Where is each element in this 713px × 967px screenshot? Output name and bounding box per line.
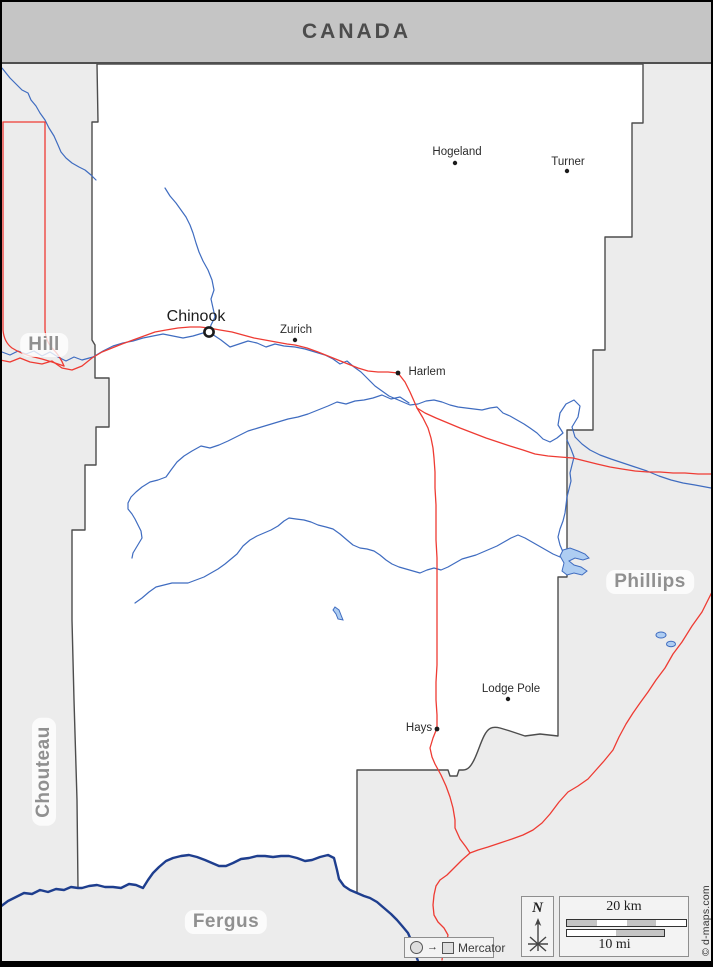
scale-segment bbox=[656, 920, 686, 926]
scale-bar-km bbox=[566, 919, 687, 927]
projection-box: → Mercator bbox=[404, 937, 494, 958]
town-label-zurich: Zurich bbox=[280, 324, 312, 336]
scale-segment bbox=[567, 920, 597, 926]
frame-left bbox=[0, 0, 2, 967]
phillips-lake-2 bbox=[667, 641, 676, 647]
town-label-hays: Hays bbox=[406, 722, 432, 734]
border-lake bbox=[560, 548, 589, 575]
arrow-right-icon: → bbox=[427, 942, 438, 953]
town-marker-harlem bbox=[396, 371, 401, 376]
town-marker-chinook bbox=[204, 327, 213, 336]
county-map bbox=[0, 0, 713, 967]
scale-segment bbox=[567, 930, 616, 936]
county-label-phillips: Phillips bbox=[606, 570, 694, 594]
town-label-lodge-pole: Lodge Pole bbox=[482, 683, 540, 695]
town-marker-hogeland bbox=[453, 161, 457, 165]
scale-box: 20 km 10 mi bbox=[559, 896, 689, 957]
scale-segment bbox=[616, 930, 665, 936]
globe-circle-icon bbox=[410, 941, 423, 954]
town-marker-hays bbox=[435, 727, 440, 732]
scale-mi-label: 10 mi bbox=[566, 937, 663, 953]
scale-segment bbox=[597, 920, 627, 926]
compass-rose-icon bbox=[525, 917, 551, 955]
scale-bar-mi bbox=[566, 929, 665, 937]
town-label-chinook: Chinook bbox=[167, 308, 226, 326]
county-label-chouteau: Chouteau bbox=[32, 718, 56, 826]
map-page: CANADA Chinook Zur bbox=[0, 0, 713, 967]
blaine-county-shape bbox=[72, 64, 643, 893]
hill-county-road-east bbox=[45, 122, 64, 366]
compass-box: N bbox=[521, 896, 554, 957]
county-label-hill: Hill bbox=[20, 333, 68, 357]
town-label-hogeland: Hogeland bbox=[432, 146, 481, 158]
scale-segment bbox=[627, 920, 657, 926]
nw-creek bbox=[2, 68, 96, 180]
banner-title: CANADA bbox=[302, 20, 411, 44]
town-marker-turner bbox=[565, 169, 569, 173]
frame-bottom bbox=[0, 961, 713, 967]
phillips-lake-1 bbox=[656, 632, 666, 638]
canada-banner: CANADA bbox=[2, 2, 711, 64]
frame-top bbox=[0, 0, 713, 2]
town-marker-lodge-pole bbox=[506, 697, 510, 701]
scale-km-label: 20 km bbox=[560, 899, 688, 915]
flat-square-icon bbox=[442, 942, 454, 954]
compass-north-label: N bbox=[532, 900, 543, 917]
projection-label: Mercator bbox=[458, 941, 505, 955]
town-label-harlem: Harlem bbox=[408, 366, 445, 378]
town-label-turner: Turner bbox=[551, 156, 584, 168]
hill-county-road-west bbox=[3, 122, 64, 366]
county-label-fergus: Fergus bbox=[185, 910, 267, 934]
town-marker-zurich bbox=[293, 338, 297, 342]
